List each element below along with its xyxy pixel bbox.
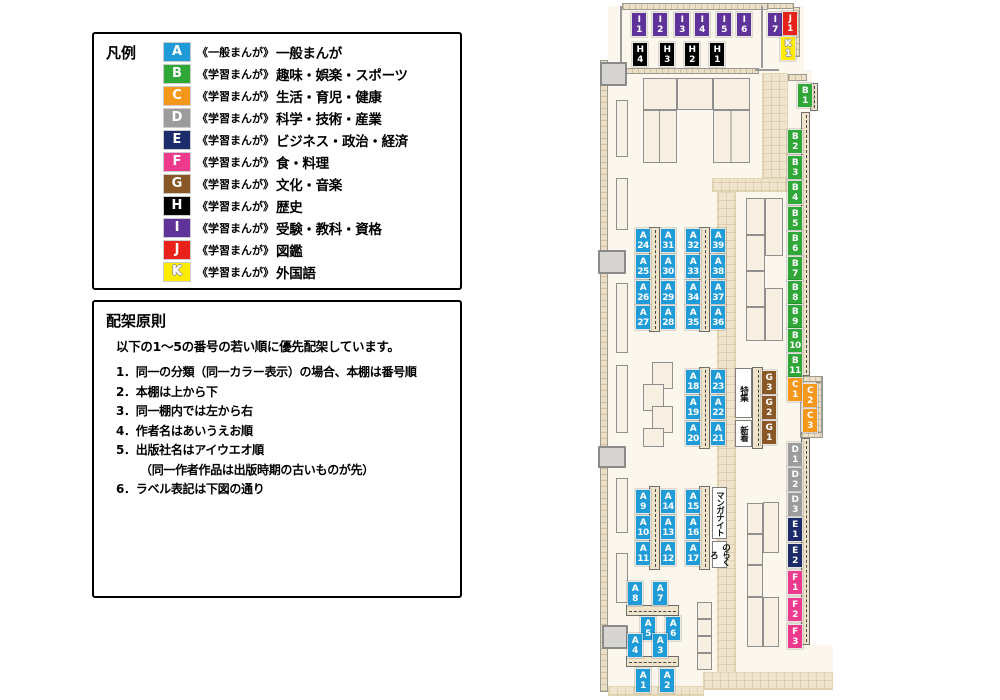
legend-category: 《学習まんが》 <box>197 176 274 192</box>
legend-label: 文化・音楽 <box>276 174 342 194</box>
shelf-label-D3: D3 <box>788 493 802 516</box>
map-wall <box>761 6 763 68</box>
map-wall <box>755 69 779 71</box>
shelf-label-A28: A28 <box>661 306 675 329</box>
shelf-label-I2: I2 <box>653 13 667 36</box>
legend-row: B《学習まんが》趣味・娯楽・スポーツ <box>164 63 408 85</box>
rule-item: 2．本棚は上から下 <box>116 383 456 403</box>
shelf-label-A23: A23 <box>711 370 725 393</box>
map-door <box>598 250 626 274</box>
shelf-label-A30: A30 <box>661 255 675 278</box>
shelf-label-A27: A27 <box>636 306 650 329</box>
map-table <box>763 502 779 553</box>
shelf-label-H1: H1 <box>710 43 724 66</box>
rule-item: 5．出版社名はアイウエオ順 <box>116 441 456 461</box>
shelf-label-A13: A13 <box>661 516 675 539</box>
legend-chip-G: G <box>164 175 190 193</box>
shelf-label-A24: A24 <box>636 229 650 252</box>
legend-row: G《学習まんが》文化・音楽 <box>164 173 408 195</box>
shelf-label-A29: A29 <box>661 281 675 304</box>
shelf-label-A21: A21 <box>711 422 725 445</box>
shelf-label-B5: B5 <box>788 207 802 230</box>
shelf-label-B10: B10 <box>788 329 802 352</box>
shelf-label-A22: A22 <box>711 396 725 419</box>
shelf-label-C2: C2 <box>803 384 817 407</box>
shelf-label-A11: A11 <box>636 542 650 565</box>
map-wall <box>600 60 608 692</box>
map-door <box>598 446 626 468</box>
legend-chip-D: D <box>164 109 190 127</box>
legend-row: D《学習まんが》科学・技術・産業 <box>164 107 408 129</box>
map-table <box>747 597 763 647</box>
map-pillar <box>616 365 628 433</box>
shelf-label-E1: E1 <box>788 518 802 541</box>
shelf-label-I1: I1 <box>632 13 646 36</box>
shelf-label-B3: B3 <box>788 156 802 179</box>
map-table <box>643 110 677 163</box>
legend-panel: 凡例 A《一般まんが》一般まんがB《学習まんが》趣味・娯楽・スポーツC《学習まん… <box>92 32 462 290</box>
shelf-label-A7: A7 <box>653 582 667 605</box>
shelf-label-H4: H4 <box>633 43 647 66</box>
legend-label: 食・料理 <box>276 152 329 172</box>
shelf-label-B1: B1 <box>798 84 812 107</box>
map-pillar <box>616 283 628 353</box>
legend-rows: A《一般まんが》一般まんがB《学習まんが》趣味・娯楽・スポーツC《学習まんが》生… <box>164 41 408 283</box>
rules-title: 配架原則 <box>106 310 166 331</box>
legend-label: 受験・教科・資格 <box>276 218 382 238</box>
map-table <box>765 288 783 341</box>
rules-list: 1．同一の分類（同一カラー表示）の場合、本棚は番号順2．本棚は上から下3．同一棚… <box>116 363 456 500</box>
shelf-label-F3: F3 <box>788 625 802 648</box>
shelf-label-A2: A2 <box>660 669 674 692</box>
legend-label: 一般まんが <box>276 42 342 62</box>
shelf-label-C1: C1 <box>788 378 802 401</box>
map-table <box>643 78 677 110</box>
rules-body: 以下の1～5の番号の若い順に優先配架しています。 1．同一の分類（同一カラー表示… <box>116 336 456 500</box>
map-door <box>602 625 628 649</box>
map-bookshelf <box>626 656 679 667</box>
legend-category: 《学習まんが》 <box>197 110 274 126</box>
shelf-label-A25: A25 <box>636 255 650 278</box>
legend-label: ビジネス・政治・経済 <box>276 130 408 150</box>
shelf-label-G1: G1 <box>762 421 776 444</box>
legend-chip-B: B <box>164 65 190 83</box>
map-pillar <box>616 178 628 230</box>
map-table <box>765 198 783 256</box>
rule-item: 1．同一の分類（同一カラー表示）の場合、本棚は番号順 <box>116 363 456 383</box>
map-table <box>763 597 779 647</box>
shelf-label-A31: A31 <box>661 229 675 252</box>
shelf-label-G2: G2 <box>762 396 776 419</box>
map-table <box>747 534 763 565</box>
shelf-label-F1: F1 <box>788 571 802 594</box>
map-table <box>747 565 763 597</box>
legend-chip-H: H <box>164 197 190 215</box>
legend-row: J《学習まんが》図鑑 <box>164 239 408 261</box>
shelf-label-H3: H3 <box>660 43 674 66</box>
shelf-label-A37: A37 <box>711 281 725 304</box>
shelf-label-A4: A4 <box>628 634 642 657</box>
shelf-label-B8: B8 <box>788 281 802 304</box>
shelf-label-A12: A12 <box>661 542 675 565</box>
shelf-label-A6: A6 <box>666 617 680 640</box>
shelf-label-A1: A1 <box>636 669 650 692</box>
legend-chip-K: K <box>164 263 190 281</box>
legend-category: 《学習まんが》 <box>197 264 274 280</box>
shelf-label-A26: A26 <box>636 281 650 304</box>
legend-category: 《学習まんが》 <box>197 198 274 214</box>
shelf-label-A19: A19 <box>686 396 700 419</box>
shelf-label-A38: A38 <box>711 255 725 278</box>
shelf-label-A35: A35 <box>686 306 700 329</box>
legend-category: 《一般まんが》 <box>197 44 274 60</box>
map-walkway <box>712 178 788 192</box>
legend-chip-C: C <box>164 87 190 105</box>
map-wall-shelf <box>801 112 810 376</box>
shelf-label-A14: A14 <box>661 490 675 513</box>
shelf-label-B6: B6 <box>788 232 802 255</box>
shelf-label-A39: A39 <box>711 229 725 252</box>
shelf-label-I5: I5 <box>717 13 731 36</box>
shelf-label-A20: A20 <box>686 422 700 445</box>
legend-chip-J: J <box>164 241 190 259</box>
rules-panel: 配架原則 以下の1～5の番号の若い順に優先配架しています。 1．同一の分類（同一… <box>92 300 462 598</box>
map-table <box>713 78 750 110</box>
rule-item: 3．同一棚内では左から右 <box>116 402 456 422</box>
map-pillar <box>616 100 628 157</box>
shelf-label-I7: I7 <box>768 13 782 36</box>
legend-label: 科学・技術・産業 <box>276 108 382 128</box>
shelf-label-A17: A17 <box>686 542 700 565</box>
map-wall <box>767 3 794 9</box>
map-table <box>697 653 712 670</box>
map-sign: 特集 <box>735 368 752 418</box>
legend-row: K《学習まんが》外国語 <box>164 261 408 283</box>
legend-label: 趣味・娯楽・スポーツ <box>276 64 408 84</box>
shelf-label-B4: B4 <box>788 181 802 204</box>
rule-item: （同一作者作品は出版時期の古いものが先） <box>116 461 456 481</box>
map-table <box>697 602 712 619</box>
map-table <box>746 307 765 341</box>
map-wall <box>801 432 823 438</box>
shelf-label-A34: A34 <box>686 281 700 304</box>
shelf-label-A3: A3 <box>653 634 667 657</box>
legend-chip-F: F <box>164 153 190 171</box>
map-wall-shelf <box>801 438 810 645</box>
map-bookshelf <box>699 227 710 332</box>
shelf-label-K1: K1 <box>781 37 795 60</box>
legend-label: 図鑑 <box>276 240 302 260</box>
shelf-label-A8: A8 <box>628 582 642 605</box>
legend-label: 外国語 <box>276 262 316 282</box>
rules-intro: 以下の1～5の番号の若い順に優先配架しています。 <box>116 336 456 355</box>
shelf-label-A16: A16 <box>686 516 700 539</box>
map-table <box>713 110 750 163</box>
map-table <box>697 636 712 653</box>
shelf-label-A18: A18 <box>686 370 700 393</box>
legend-chip-A: A <box>164 43 190 61</box>
map-sign: マンガナイト <box>712 487 727 539</box>
map-table <box>746 198 765 235</box>
map-walkway <box>762 73 788 179</box>
shelf-label-I3: I3 <box>675 13 689 36</box>
map-walkway <box>703 672 833 690</box>
legend-category: 《学習まんが》 <box>197 220 274 236</box>
legend-row: A《一般まんが》一般まんが <box>164 41 408 63</box>
shelf-label-B7: B7 <box>788 257 802 280</box>
map-table <box>643 428 664 447</box>
legend-chip-I: I <box>164 219 190 237</box>
map-bookshelf <box>649 486 660 570</box>
shelf-label-A15: A15 <box>686 490 700 513</box>
map-walkway <box>608 686 704 696</box>
map-wall <box>625 68 759 74</box>
shelf-label-A10: A10 <box>636 516 650 539</box>
map-table <box>747 503 763 534</box>
map-bookshelf <box>699 367 710 449</box>
legend-title: 凡例 <box>106 42 136 63</box>
legend-label: 歴史 <box>276 196 302 216</box>
shelf-label-E2: E2 <box>788 544 802 567</box>
map-sign: 新着 <box>735 420 752 447</box>
shelf-label-J1: J1 <box>783 12 797 35</box>
map-sign: のらくろ <box>712 541 727 568</box>
legend-row: C《学習まんが》生活・育児・健康 <box>164 85 408 107</box>
shelf-label-A32: A32 <box>686 229 700 252</box>
legend-category: 《学習まんが》 <box>197 242 274 258</box>
shelf-label-H2: H2 <box>685 43 699 66</box>
legend-category: 《学習まんが》 <box>197 88 274 104</box>
shelf-label-D2: D2 <box>788 468 802 491</box>
map-bookshelf <box>649 227 660 332</box>
shelf-label-B9: B9 <box>788 305 802 328</box>
map-wall <box>620 6 622 62</box>
map-table <box>697 619 712 636</box>
shelf-label-B11: B11 <box>788 354 802 377</box>
legend-category: 《学習まんが》 <box>197 154 274 170</box>
shelf-label-D1: D1 <box>788 443 802 466</box>
map-door <box>600 62 627 86</box>
rule-item: 6．ラベル表記は下図の通り <box>116 480 456 500</box>
shelf-label-A9: A9 <box>636 490 650 513</box>
shelf-label-I4: I4 <box>695 13 709 36</box>
map-bookshelf <box>626 605 679 616</box>
legend-category: 《学習まんが》 <box>197 66 274 82</box>
rule-item: 4．作者名はあいうえお順 <box>116 422 456 442</box>
shelf-label-B2: B2 <box>788 130 802 153</box>
label-diagram: Aあいシヨ 棚記号作者名出版社名 <box>94 602 464 697</box>
legend-row: F《学習まんが》食・料理 <box>164 151 408 173</box>
shelf-label-F2: F2 <box>788 598 802 621</box>
map-table <box>746 271 765 307</box>
map-pillar <box>616 478 628 533</box>
map-pillar <box>616 553 628 603</box>
shelf-label-A33: A33 <box>686 255 700 278</box>
legend-chip-E: E <box>164 131 190 149</box>
legend-label: 生活・育児・健康 <box>276 86 382 106</box>
map-table <box>746 235 765 271</box>
legend-row: H《学習まんが》歴史 <box>164 195 408 217</box>
shelf-label-A36: A36 <box>711 306 725 329</box>
shelf-label-C3: C3 <box>803 409 817 432</box>
legend-category: 《学習まんが》 <box>197 132 274 148</box>
shelf-label-G3: G3 <box>762 371 776 394</box>
legend-row: I《学習まんが》受験・教科・資格 <box>164 217 408 239</box>
map-table <box>677 78 713 110</box>
map-wall <box>622 3 768 10</box>
legend-row: E《学習まんが》ビジネス・政治・経済 <box>164 129 408 151</box>
floor-map: I1I2I3I4I5I6I7J1K1H4H3H2H1B1B2B3B4B5B6B7… <box>600 0 840 700</box>
shelf-label-I6: I6 <box>737 13 751 36</box>
map-wall <box>788 74 807 81</box>
